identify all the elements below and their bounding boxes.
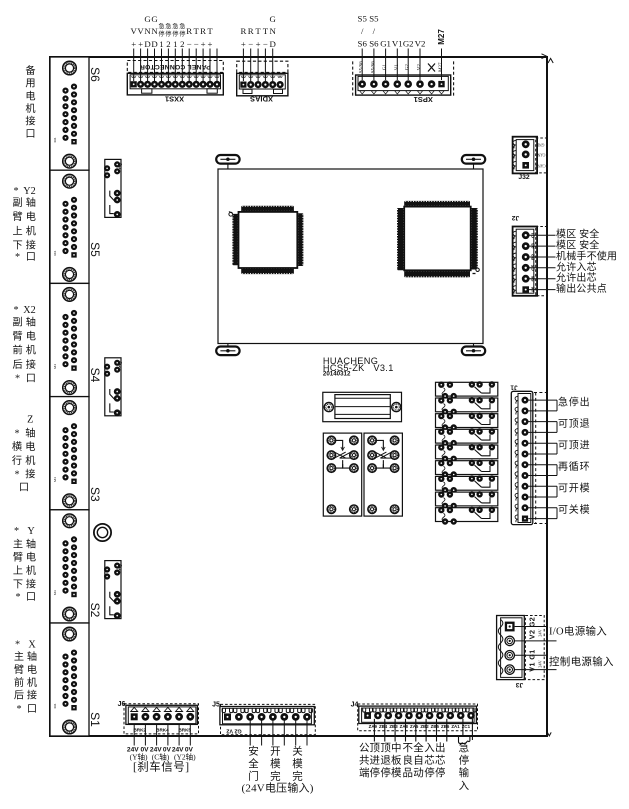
svg-text:2: 2 — [180, 39, 184, 49]
svg-text:*: * — [14, 428, 19, 439]
svg-text:ZB4: ZB4 — [379, 724, 388, 729]
svg-text:芯: 芯 — [435, 754, 446, 767]
svg-text:再循环: 再循环 — [558, 460, 590, 473]
svg-text:后: 后 — [14, 690, 24, 702]
svg-text:−: − — [187, 39, 192, 49]
svg-text:N: N — [270, 26, 277, 36]
svg-text:臂: 臂 — [13, 210, 23, 223]
svg-text:顶: 顶 — [380, 742, 391, 754]
svg-text:V1 G1: V1 G1 — [527, 649, 536, 671]
svg-text:全: 全 — [248, 757, 259, 770]
svg-text:ZB3: ZB3 — [389, 724, 398, 729]
svg-text:(C轴): (C轴) — [152, 751, 170, 761]
svg-text:入: 入 — [459, 780, 470, 792]
svg-text:电: 电 — [27, 663, 37, 676]
svg-text:口: 口 — [26, 374, 36, 385]
svg-text:副: 副 — [13, 316, 23, 328]
svg-text:1: 1 — [173, 39, 177, 49]
svg-text:品: 品 — [403, 767, 414, 779]
svg-text:停: 停 — [424, 766, 435, 779]
svg-text:+: + — [131, 39, 136, 49]
svg-text:不: 不 — [403, 743, 414, 754]
svg-text:停: 停 — [380, 766, 391, 779]
svg-text:中: 中 — [391, 741, 402, 754]
svg-text:ZA1: ZA1 — [451, 724, 460, 729]
svg-text:机: 机 — [26, 224, 36, 237]
svg-text:T: T — [255, 26, 261, 36]
svg-text:上: 上 — [13, 225, 23, 237]
svg-text:行: 行 — [12, 454, 22, 467]
svg-text:J32: J32 — [518, 174, 530, 181]
svg-text:(Y轴): (Y轴) — [130, 751, 148, 761]
svg-text:前: 前 — [14, 676, 24, 689]
svg-text:轴: 轴 — [26, 315, 36, 328]
svg-text:公: 公 — [359, 742, 370, 754]
svg-text:Y2: Y2 — [23, 186, 35, 197]
svg-text:动: 动 — [413, 767, 424, 779]
svg-text:停: 停 — [435, 766, 446, 779]
svg-text:M4: M4 — [53, 703, 57, 708]
svg-text:停: 停 — [158, 30, 164, 38]
svg-text:电: 电 — [26, 551, 36, 564]
svg-text:D: D — [270, 39, 276, 49]
svg-text:G1: G1 — [380, 39, 391, 49]
svg-text:板: 板 — [391, 754, 402, 767]
svg-text:横: 横 — [12, 440, 22, 453]
svg-text:顶: 顶 — [369, 742, 380, 754]
svg-text:V1: V1 — [392, 39, 403, 49]
svg-text:J6: J6 — [118, 701, 126, 708]
svg-text:Y: Y — [27, 526, 35, 537]
svg-text:+: + — [138, 39, 143, 49]
svg-text:停: 停 — [459, 754, 470, 767]
svg-text:V: V — [137, 26, 144, 36]
svg-text:电: 电 — [26, 329, 36, 342]
svg-text:全: 全 — [413, 741, 424, 754]
svg-text:允许出芯: 允许出芯 — [556, 271, 597, 284]
svg-text:后: 后 — [13, 359, 23, 371]
svg-text:*: * — [15, 592, 20, 603]
svg-text:良: 良 — [403, 754, 414, 767]
svg-text:完: 完 — [292, 770, 303, 783]
svg-text:接: 接 — [26, 358, 36, 371]
svg-text:下: 下 — [13, 579, 23, 590]
svg-text:S6: S6 — [369, 39, 379, 49]
svg-text:允许入芯: 允许入芯 — [556, 260, 597, 273]
svg-text:输: 输 — [459, 766, 470, 779]
svg-text:用: 用 — [25, 79, 35, 90]
svg-text:安: 安 — [248, 744, 259, 757]
svg-text:T: T — [194, 26, 200, 36]
svg-text:上: 上 — [13, 565, 23, 577]
svg-text:ZA9: ZA9 — [369, 724, 378, 729]
svg-text:模: 模 — [270, 758, 281, 770]
svg-text:机: 机 — [26, 344, 36, 357]
svg-text:J3: J3 — [516, 681, 524, 688]
svg-text:臂: 臂 — [13, 551, 23, 564]
svg-text:电: 电 — [26, 210, 36, 223]
svg-text:XXS1: XXS1 — [165, 95, 184, 104]
svg-text:S2: S2 — [88, 603, 102, 618]
svg-text:1: 1 — [159, 39, 163, 49]
svg-text:出: 出 — [435, 741, 446, 754]
svg-text:24V: 24V — [537, 628, 542, 636]
svg-text:停: 停 — [172, 30, 178, 38]
svg-text:*: * — [15, 640, 20, 651]
svg-text:BRK5: BRK5 — [178, 727, 191, 732]
svg-text:副: 副 — [13, 197, 23, 209]
svg-text:R: R — [240, 26, 246, 36]
svg-text:J5: J5 — [212, 701, 220, 708]
svg-text:N: N — [151, 26, 158, 36]
svg-text:−: − — [248, 39, 253, 49]
svg-text:机: 机 — [27, 676, 37, 689]
svg-text:进: 进 — [369, 755, 380, 767]
svg-text:接: 接 — [25, 467, 35, 480]
svg-text:模: 模 — [292, 758, 303, 770]
svg-text:BRK2: BRK2 — [133, 727, 146, 732]
svg-text:轴: 轴 — [26, 196, 36, 209]
svg-text:M4: M4 — [53, 137, 57, 142]
svg-text:机: 机 — [25, 454, 35, 467]
svg-text:控制电源输入: 控制电源输入 — [549, 655, 614, 668]
svg-text:急: 急 — [179, 23, 185, 31]
svg-text:S5: S5 — [358, 13, 368, 23]
svg-text:模区 安全: 模区 安全 — [556, 228, 600, 241]
svg-text:退: 退 — [380, 755, 391, 767]
svg-text:*: * — [15, 374, 20, 385]
svg-text:D: D — [144, 39, 150, 49]
svg-text:可关模: 可关模 — [558, 503, 590, 516]
svg-text:输出公共点: 输出公共点 — [556, 282, 607, 295]
svg-text:芯: 芯 — [424, 754, 435, 767]
svg-text:S3: S3 — [88, 487, 102, 502]
svg-text:*: * — [14, 526, 19, 537]
svg-text:X2: X2 — [23, 305, 35, 316]
svg-text:关: 关 — [292, 744, 303, 757]
svg-text:ZB6: ZB6 — [441, 724, 450, 729]
svg-text:口: 口 — [25, 129, 35, 140]
svg-text:G: G — [151, 14, 158, 24]
svg-text:M4: M4 — [53, 251, 57, 256]
svg-text:+: + — [256, 39, 261, 49]
svg-text:急: 急 — [459, 741, 470, 754]
svg-text:轴: 轴 — [25, 426, 35, 439]
svg-text:*: * — [15, 252, 20, 263]
svg-text:急: 急 — [165, 23, 171, 31]
svg-text:急: 急 — [158, 23, 164, 31]
svg-text:完: 完 — [270, 770, 281, 783]
svg-text:端: 端 — [359, 766, 370, 779]
svg-text:2: 2 — [166, 39, 170, 49]
svg-text:主: 主 — [14, 651, 24, 663]
svg-text:S6: S6 — [358, 39, 368, 49]
svg-text:ZA8: ZA8 — [400, 724, 409, 729]
svg-text:急: 急 — [172, 23, 178, 31]
svg-text:可开模: 可开模 — [558, 483, 590, 495]
svg-text:电: 电 — [25, 89, 35, 102]
svg-text:V2: V2 — [415, 39, 426, 49]
svg-text:(24V电压输入): (24V电压输入) — [242, 781, 314, 795]
svg-text:前: 前 — [13, 344, 23, 357]
svg-text:I/O电源输入: I/O电源输入 — [549, 625, 607, 638]
svg-text:M4: M4 — [53, 364, 57, 369]
svg-text:ZB5: ZB5 — [431, 724, 440, 729]
svg-text:备: 备 — [25, 64, 35, 77]
svg-text:−: − — [263, 39, 268, 49]
svg-text:停: 停 — [165, 30, 171, 38]
svg-text:+: + — [201, 39, 206, 49]
svg-text:G2 V2: G2 V2 — [226, 727, 241, 733]
svg-text:+: + — [241, 39, 246, 49]
svg-text:S4: S4 — [88, 368, 102, 383]
svg-text:可顶进: 可顶进 — [558, 440, 590, 452]
svg-text:入: 入 — [424, 742, 435, 754]
svg-text:20140312: 20140312 — [323, 371, 351, 378]
svg-text:[刹车信号]: [刹车信号] — [133, 759, 190, 773]
svg-text:+: + — [208, 39, 213, 49]
svg-text:模区 安全: 模区 安全 — [556, 239, 600, 252]
svg-text:口: 口 — [26, 252, 36, 263]
svg-text:接: 接 — [26, 577, 36, 590]
svg-text:G: G — [270, 14, 277, 24]
svg-text:R: R — [248, 26, 254, 36]
svg-text:模: 模 — [391, 767, 402, 779]
svg-text:D: D — [151, 39, 157, 49]
svg-text:G2: G2 — [403, 39, 414, 49]
svg-text:臂: 臂 — [14, 663, 24, 676]
svg-text:电: 电 — [25, 440, 35, 453]
svg-text:J1: J1 — [510, 384, 518, 391]
svg-text:T: T — [263, 26, 269, 36]
svg-text:S1: S1 — [88, 712, 102, 727]
svg-text:自: 自 — [413, 754, 424, 767]
svg-text:机: 机 — [25, 102, 35, 115]
svg-text:口: 口 — [27, 704, 37, 715]
svg-text:S6: S6 — [88, 67, 102, 82]
svg-text:XPS1: XPS1 — [414, 95, 433, 104]
svg-text:*: * — [13, 186, 18, 197]
svg-text:M27: M27 — [437, 29, 446, 45]
svg-text:*: * — [16, 704, 21, 715]
svg-text:口: 口 — [26, 592, 36, 603]
svg-text:*: * — [14, 469, 19, 480]
svg-text:R: R — [200, 26, 206, 36]
svg-text:口: 口 — [19, 482, 29, 493]
svg-text:接: 接 — [27, 689, 37, 702]
svg-text:Z: Z — [27, 415, 33, 426]
svg-text:J2: J2 — [512, 214, 520, 221]
svg-text:S5: S5 — [88, 242, 102, 257]
svg-text:停: 停 — [179, 30, 185, 38]
svg-text:接: 接 — [25, 115, 35, 128]
svg-text:臂: 臂 — [13, 329, 23, 342]
svg-text:M4: M4 — [53, 590, 57, 595]
svg-text:停: 停 — [369, 766, 380, 779]
svg-text:S5: S5 — [369, 13, 379, 23]
svg-text:急停出: 急停出 — [558, 395, 590, 408]
svg-text:下: 下 — [13, 240, 23, 251]
svg-text:V2 G2: V2 G2 — [527, 617, 536, 639]
svg-text:机械手不使用: 机械手不使用 — [556, 250, 617, 263]
svg-text:BRK4: BRK4 — [156, 727, 169, 732]
svg-text:主: 主 — [13, 538, 23, 550]
svg-text:门: 门 — [248, 770, 259, 783]
svg-text:24V: 24V — [537, 659, 542, 667]
svg-text:轴: 轴 — [26, 537, 36, 550]
svg-text:机: 机 — [26, 564, 36, 577]
svg-text:−: − — [194, 39, 199, 49]
svg-text:CANL: CANL — [536, 152, 546, 156]
svg-text:J4: J4 — [351, 701, 359, 708]
svg-text:开: 开 — [270, 746, 281, 757]
svg-text:ZA5: ZA5 — [410, 724, 419, 729]
svg-text:T: T — [207, 26, 213, 36]
svg-text:共: 共 — [359, 755, 370, 767]
svg-text:CANH: CANH — [535, 163, 546, 167]
svg-text:XDIAS: XDIAS — [250, 94, 273, 103]
svg-text:接: 接 — [26, 238, 36, 251]
svg-text:X: X — [28, 640, 36, 651]
svg-text:M4: M4 — [53, 477, 57, 482]
svg-text:GND: GND — [536, 142, 544, 146]
svg-text:ZB2: ZB2 — [420, 724, 429, 729]
svg-text:(Y2轴): (Y2轴) — [174, 751, 196, 761]
svg-text:R: R — [186, 26, 192, 36]
svg-text:轴: 轴 — [27, 650, 37, 663]
svg-text:可顶退: 可顶退 — [558, 418, 590, 430]
svg-text:*: * — [13, 305, 18, 316]
